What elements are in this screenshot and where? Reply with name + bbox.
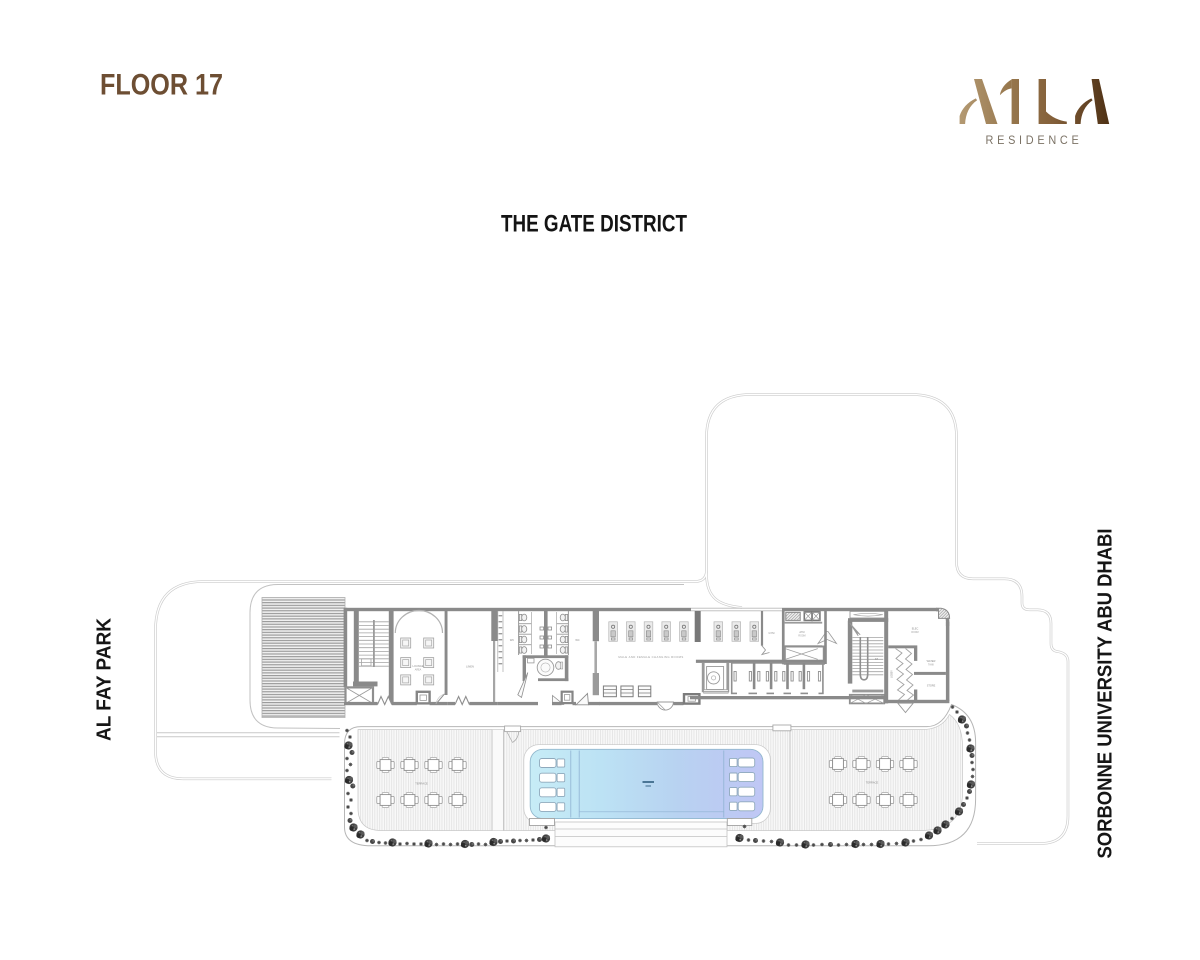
- svg-text:RESIDENCE: RESIDENCE: [986, 133, 1083, 147]
- svg-text:TERRACE: TERRACE: [415, 782, 428, 786]
- svg-text:LOBBY: LOBBY: [892, 670, 894, 678]
- svg-text:TERRACE: TERRACE: [866, 781, 879, 785]
- svg-text:ROOM: ROOM: [911, 632, 918, 634]
- svg-text:AL FAY PARK: AL FAY PARK: [93, 618, 116, 741]
- svg-text:AHU: AHU: [799, 631, 804, 634]
- svg-text:LINEN: LINEN: [466, 665, 474, 669]
- svg-text:WATER: WATER: [927, 660, 936, 663]
- svg-text:THE GATE DISTRICT: THE GATE DISTRICT: [501, 211, 687, 238]
- svg-text:WC: WC: [510, 638, 514, 642]
- svg-text:STORE: STORE: [927, 685, 936, 688]
- svg-text:GYM: GYM: [769, 631, 775, 635]
- svg-text:WC: WC: [575, 638, 579, 642]
- svg-text:ELEC: ELEC: [912, 628, 919, 631]
- svg-text:LOUNGE: LOUNGE: [413, 664, 424, 668]
- svg-text:TANK: TANK: [928, 663, 934, 666]
- svg-text:AREA: AREA: [415, 668, 422, 671]
- svg-text:SORBONNE UNIVERSITY ABU DHABI: SORBONNE UNIVERSITY ABU DHABI: [1095, 529, 1117, 859]
- svg-text:MALE AND FEMALE CHANGING ROOMS: MALE AND FEMALE CHANGING ROOMS: [618, 655, 683, 659]
- svg-text:ROOM: ROOM: [798, 635, 805, 637]
- svg-text:FLOOR 17: FLOOR 17: [100, 69, 223, 102]
